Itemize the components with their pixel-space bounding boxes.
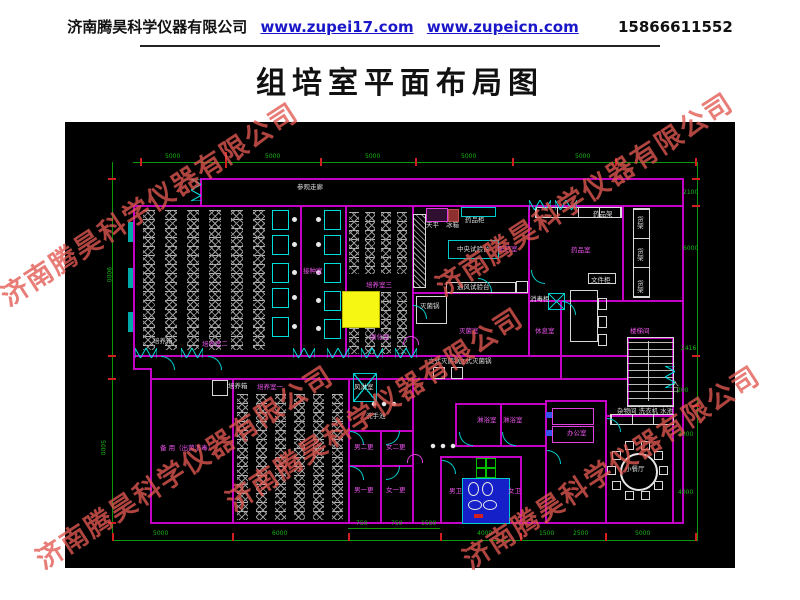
room-label: 男一更 (354, 487, 374, 494)
equipment-label: 培养箱 (228, 383, 248, 390)
wall (232, 378, 234, 524)
equipment-label: 参观走廊 (297, 184, 323, 191)
dim-tick (140, 158, 142, 166)
room-label: 备 用（出菌消毒） (160, 445, 214, 452)
wall (348, 378, 350, 524)
stair-rail (648, 341, 649, 401)
culture-rack-group (349, 212, 408, 274)
toilet-fixture (468, 482, 479, 496)
dimension-label: 200 (677, 388, 688, 394)
equipment-label: 货架 (636, 216, 643, 229)
equipment-label: 灭菌锅 (420, 303, 440, 310)
dining-chair (659, 466, 668, 475)
dimension-label: 6000 (272, 531, 287, 537)
company-name: 济南腾昊科学仪器有限公司 (67, 18, 247, 36)
dim-tick (692, 205, 700, 207)
office-desk (552, 408, 594, 425)
wall (412, 378, 414, 524)
phone-number: 15866611552 (618, 18, 733, 36)
clean-bench (272, 288, 289, 308)
double-door-icon (191, 179, 201, 201)
squat-pan (476, 468, 486, 478)
incubator (212, 380, 228, 396)
small-cabinet (516, 281, 528, 293)
dining-chair (641, 441, 650, 450)
clean-bench (324, 319, 341, 339)
door-arc-icon (350, 466, 364, 480)
wall (455, 403, 457, 445)
radiator (128, 222, 133, 242)
wall (528, 205, 530, 355)
room-label: 灭菌室 (459, 328, 479, 335)
toilet-fixture (483, 500, 497, 510)
toilet-fixture (474, 514, 483, 518)
wall (133, 205, 135, 370)
room-label: 配药室 (498, 246, 518, 253)
floor-drain-icon (403, 336, 419, 345)
dim-tick (225, 152, 227, 168)
lounge-chair (598, 298, 607, 310)
room-label: 男卫 (449, 488, 462, 495)
dim-tick (415, 158, 417, 166)
equipment-label: 中央试验台 (457, 246, 490, 253)
dim-tick (692, 405, 700, 407)
wall (622, 205, 624, 300)
radiator (128, 312, 133, 332)
wall (345, 205, 347, 355)
room-label: 女一更 (386, 487, 406, 494)
equipment-label: 药品架 (593, 211, 613, 218)
squat-pan (486, 458, 496, 468)
dim-line-bottom (112, 540, 698, 541)
double-door-icon (361, 348, 383, 358)
room-label: 淋浴室 (503, 417, 523, 424)
link-zupeicn[interactable]: www.zupeicn.com (427, 18, 579, 36)
clean-bench (324, 263, 341, 283)
dimension-label: 9000 (105, 267, 111, 282)
door-arc-icon (531, 270, 545, 284)
equipment-label: 杂物间 洗衣机 水池 (617, 408, 673, 415)
dim-tick (520, 533, 522, 541)
equipment-label: 小餐厅 (625, 466, 645, 473)
dimension-label: 2100 (683, 190, 698, 196)
dimension-label: 750 (391, 521, 402, 527)
wall (545, 400, 605, 402)
dim-tick (440, 533, 442, 541)
dim-tick (320, 158, 322, 166)
room-label: 培养室二 (202, 341, 228, 348)
balance-table (426, 208, 448, 222)
equipment-label: 药品柜 (465, 217, 485, 224)
clean-bench (324, 210, 341, 230)
equipment-label: 天平 (426, 222, 439, 229)
double-door-icon (395, 348, 417, 358)
dim-tick (615, 158, 617, 166)
dim-line-left (112, 162, 113, 540)
wash-basins (369, 400, 399, 408)
room-label: 女二更 (386, 444, 406, 451)
dimension-label: 1500 (421, 521, 436, 527)
double-door-icon (555, 200, 577, 210)
radiator (128, 268, 133, 288)
dimension-label: 5000 (153, 531, 168, 537)
room-label: 男二更 (354, 444, 374, 451)
double-door-icon (529, 200, 551, 210)
clean-bench (324, 291, 341, 311)
door-arc-icon (161, 356, 175, 370)
floor-plan: 参观走廊培养箱培养箱天平冰箱药品柜中央试验台通风试验台灭菌锅药品架货架货架货架消… (65, 122, 735, 568)
equipment-label: 货架 (636, 280, 643, 293)
dim-tick (108, 178, 116, 180)
dining-chair (641, 491, 650, 500)
dining-chair (654, 451, 663, 460)
dimension-label: 6000 (683, 246, 698, 252)
lounge-desk (570, 290, 598, 342)
dining-chair (607, 466, 616, 475)
room-label: 休息室 (535, 328, 555, 335)
dining-chair (625, 441, 634, 450)
door-arc-icon (459, 432, 473, 446)
clean-bench (272, 235, 289, 255)
dim-tick (348, 533, 350, 541)
room-label: 培养室一 (257, 384, 283, 391)
equipment-label: 洗手池 (366, 413, 386, 420)
equipment-label: 文件柜 (591, 277, 611, 284)
dining-chair (612, 481, 621, 490)
dimension-label: 5000 (265, 154, 280, 160)
clean-bench (272, 263, 289, 283)
room-label: 药品室 (571, 247, 591, 254)
wall (300, 205, 302, 355)
wall (380, 430, 382, 524)
dimension-label: 5000 (99, 440, 105, 455)
double-door-icon (327, 348, 349, 358)
dimension-label: 5000 (575, 154, 590, 160)
equipment-label: 培养箱 (153, 338, 173, 345)
dining-chair (625, 491, 634, 500)
dimension-label: 750 (356, 521, 367, 527)
dining-chair (612, 451, 621, 460)
equipment-label: 立式灭菌锅 (459, 358, 492, 365)
dim-tick (692, 355, 700, 357)
dim-tick (695, 533, 697, 541)
door-arc-icon (208, 356, 222, 370)
clean-bench (272, 210, 289, 230)
double-door-icon (293, 348, 315, 358)
wall (133, 368, 150, 370)
highlight-box (342, 291, 380, 328)
clean-bench (272, 317, 289, 337)
header-divider (140, 45, 660, 47)
dim-tick (232, 533, 234, 541)
floor-drain-icon (407, 454, 423, 463)
dimension-label: 2416 (681, 346, 696, 352)
room-label: 接种室 (303, 268, 323, 275)
wall (500, 403, 502, 445)
equipment-label: 风淋室 (354, 384, 374, 391)
dimension-label: 1500 (539, 531, 554, 537)
utility-counter (610, 414, 674, 425)
dim-line-bottom-secondary (348, 528, 440, 529)
dining-chair (654, 481, 663, 490)
double-door-icon (181, 348, 203, 358)
room-label: 淋浴室 (477, 417, 497, 424)
room-label: 女卫 (508, 488, 521, 495)
dim-tick (605, 533, 607, 541)
squat-pan (486, 468, 496, 478)
dimension-label: 4000 (678, 432, 693, 438)
dim-tick (108, 355, 116, 357)
vertical-autoclave (433, 367, 445, 379)
room-label: 楼梯间 (630, 328, 650, 335)
door-arc-icon (547, 450, 561, 464)
side-bench (413, 214, 426, 288)
squat-pan (476, 458, 486, 468)
vertical-autoclave (451, 367, 463, 379)
clean-bench (324, 235, 341, 255)
dim-tick (108, 378, 116, 380)
door-arc-icon (502, 432, 516, 446)
dimension-label: 5000 (635, 531, 650, 537)
equipment-label: 通风试验台 (457, 284, 490, 291)
dim-tick (512, 158, 514, 166)
page: 济南腾昊科学仪器有限公司 www.zupei17.com www.zupeicn… (0, 0, 800, 600)
room-label: 培养室三 (366, 282, 392, 289)
lounge-chair (598, 316, 607, 328)
dimension-label: 2500 (573, 531, 588, 537)
dim-tick (695, 158, 697, 166)
dimension-label: 5000 (461, 154, 476, 160)
equipment-label: 立式灭菌锅 (428, 358, 461, 365)
office-chair (546, 430, 552, 436)
dim-line-right (697, 162, 698, 540)
dim-tick (692, 178, 700, 180)
office-chair (546, 412, 552, 418)
culture-rack-group (237, 394, 344, 520)
link-zupei17[interactable]: www.zupei17.com (260, 18, 413, 36)
room-label: 办公室 (567, 430, 587, 437)
toilet-fixture (468, 500, 482, 510)
dimension-label: 5000 (365, 154, 380, 160)
wall (150, 368, 152, 524)
room-label: 驯化室 (370, 334, 390, 341)
wall (200, 178, 682, 180)
dimension-label: 4000 (477, 531, 492, 537)
wall (150, 522, 682, 524)
dim-tick (108, 522, 116, 524)
equipment-label: 货架 (636, 248, 643, 261)
dim-tick (112, 533, 114, 541)
door-arc-icon (386, 466, 400, 480)
toilet-fixture (482, 482, 493, 496)
page-title: 组培室平面布局图 (0, 58, 800, 102)
wash-basins (428, 442, 458, 450)
equipment-label: 冰箱 (446, 222, 459, 229)
lounge-chair (598, 334, 607, 346)
dimension-label: 4000 (678, 490, 693, 496)
culture-rack-group (143, 210, 267, 350)
header: 济南腾昊科学仪器有限公司 www.zupei17.com www.zupeicn… (0, 16, 800, 37)
dimension-label: 5000 (165, 154, 180, 160)
equipment-label: 消毒柜 (530, 296, 550, 303)
door-arc-icon (442, 460, 456, 474)
double-door-icon (135, 348, 157, 358)
